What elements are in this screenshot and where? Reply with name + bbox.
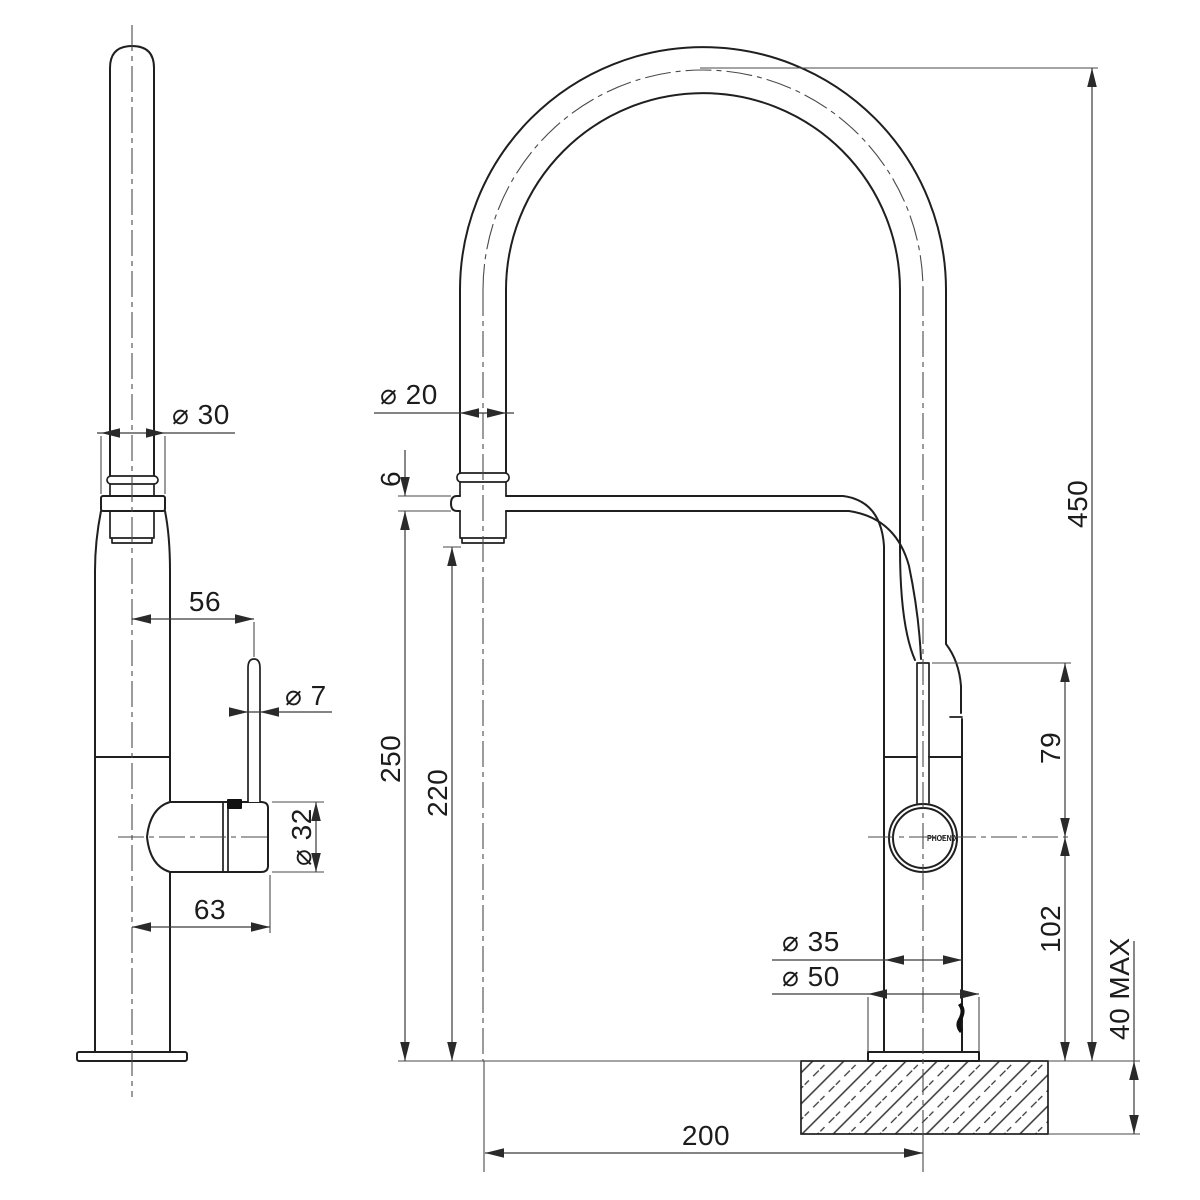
support-arm-left-cap	[451, 496, 460, 511]
label-dia7: ⌀ 7	[285, 680, 327, 711]
right-leg-inner-curve	[900, 290, 915, 660]
dimension-arrowheads	[101, 68, 1139, 1158]
label-56: 56	[189, 586, 221, 617]
technical-drawing-page: PHOENIX	[0, 0, 1200, 1200]
bench-section	[801, 1061, 1048, 1134]
lever-rod-side	[248, 659, 260, 802]
label-dia20: ⌀ 20	[380, 379, 438, 410]
ext-6	[398, 496, 451, 511]
label-220: 220	[422, 769, 453, 817]
brand-label: PHOENIX	[927, 833, 958, 843]
label-dia30: ⌀ 30	[172, 399, 230, 430]
gooseneck-outer-arc	[460, 47, 946, 290]
label-250: 250	[375, 735, 406, 783]
label-450: 450	[1062, 480, 1093, 528]
hose-clip-mark	[956, 1003, 964, 1033]
label-dia32: ⌀ 32	[286, 808, 317, 866]
label-200: 200	[682, 1120, 730, 1151]
gooseneck-inner-arc	[506, 93, 900, 290]
faucet-dimension-drawing: PHOENIX	[0, 0, 1200, 1200]
dimension-labels: ⌀ 30 56 ⌀ 7 ⌀ 32 63 ⌀ 20 6 250 220 450 7…	[172, 379, 1135, 1151]
centerlines	[118, 25, 1071, 1140]
label-6: 6	[375, 471, 406, 487]
dimension-lines	[97, 68, 1140, 1172]
side-view	[77, 46, 268, 1061]
brand-mark	[227, 799, 242, 809]
front-view: PHOENIX	[451, 47, 1048, 1134]
label-dia35: ⌀ 35	[782, 926, 840, 957]
label-dia50: ⌀ 50	[782, 961, 840, 992]
label-63: 63	[194, 894, 226, 925]
support-arm-bottom-curve	[506, 511, 921, 659]
right-leg-outer-spout	[946, 290, 961, 713]
label-102: 102	[1035, 905, 1066, 953]
label-79: 79	[1035, 732, 1066, 764]
support-collar	[101, 496, 165, 511]
label-40max: 40 MAX	[1104, 937, 1135, 1040]
